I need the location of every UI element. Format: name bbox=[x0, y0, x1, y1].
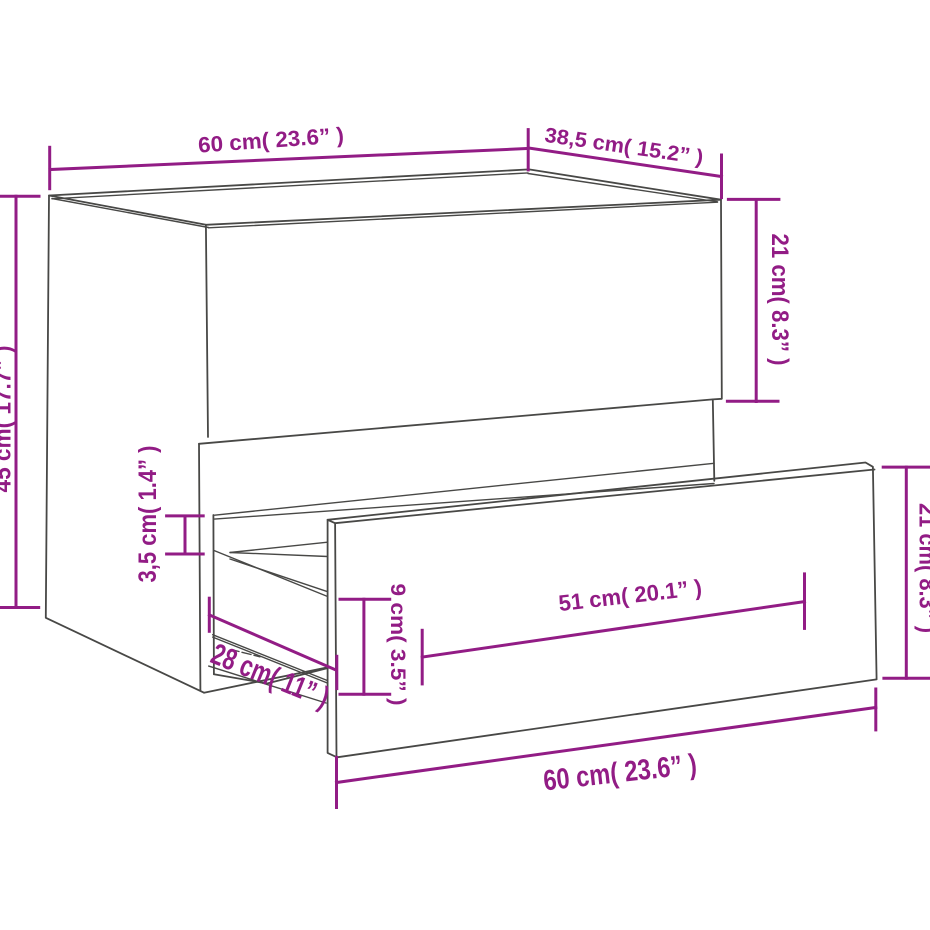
svg-text:3,5 cm( 1.4” ): 3,5 cm( 1.4” ) bbox=[134, 446, 162, 583]
svg-text:45 cm( 17.7” ): 45 cm( 17.7” ) bbox=[0, 346, 17, 493]
svg-text:9 cm( 3.5” ): 9 cm( 3.5” ) bbox=[386, 584, 409, 706]
svg-text:21 cm( 8.3” ): 21 cm( 8.3” ) bbox=[914, 503, 930, 633]
svg-text:21 cm( 8.3” ): 21 cm( 8.3” ) bbox=[766, 234, 793, 366]
